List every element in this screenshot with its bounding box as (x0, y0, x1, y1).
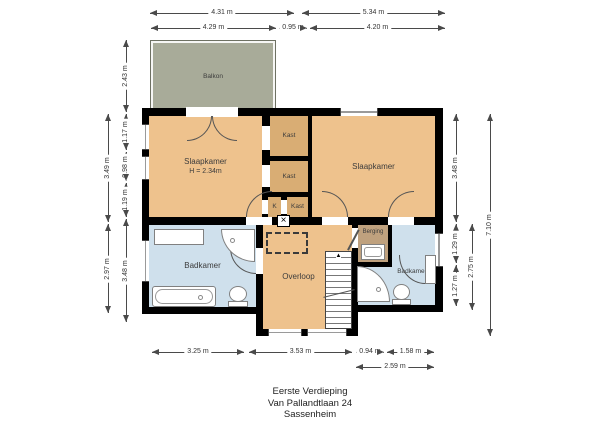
dim-bottom-325: 3.25 m (152, 352, 244, 353)
dim-bottom-259: 2.59 m (356, 367, 434, 368)
dim-left-349: 3.49 m (108, 114, 109, 222)
room-label-overloop: Overloop (282, 272, 314, 282)
window-bedroom-left-lower (142, 156, 149, 180)
dim-right-710: 7.10 m (490, 114, 491, 336)
plan-title-address: Van Pallandtlaan 24 (20, 398, 600, 410)
shower-drain (230, 238, 235, 243)
dim-top-420: 4.20 m (310, 28, 445, 29)
window-overloop-bottom-right (307, 329, 347, 336)
bathtub-drain (198, 295, 203, 300)
dim-bottom-158: 1.58 m (387, 352, 434, 353)
dim-top-429: 4.29 m (151, 28, 276, 29)
dim-label: 3.48 m (452, 154, 460, 181)
dim-right-129: 1.29 m (456, 224, 457, 263)
window-badkamer-left (142, 240, 149, 282)
dim-right-275: 2.75 m (472, 224, 473, 310)
room-kast-mid: Kast (270, 161, 308, 192)
room-label-balkon: Balkon (203, 73, 223, 81)
room-note-ceiling-height: H = 2.34m (189, 167, 222, 176)
dim-label: 3.25 m (184, 348, 211, 356)
plan-title-floor: Eerste Verdieping (20, 386, 600, 398)
doorway-slaapkamer-right-b (388, 217, 414, 225)
window-overloop-bottom-left (268, 329, 302, 336)
dim-right-348: 3.48 m (456, 114, 457, 222)
dim-label: 4.20 m (364, 24, 391, 32)
dim-label: 2.75 m (468, 253, 476, 280)
dim-bottom-094: 0.94 m (356, 352, 384, 353)
dim-label: 4.29 m (200, 24, 227, 32)
sink-counter (154, 229, 204, 245)
window-bedroom-left-upper (142, 124, 149, 150)
bathtub (152, 286, 216, 307)
room-label-slaapkamer-left: Slaapkamer (184, 157, 227, 167)
room-kast-bottom: Kast (287, 197, 308, 217)
doorway-slaapkamer-right-a (322, 217, 348, 225)
dim-top-534: 5.34 m (302, 13, 445, 14)
dim-label: 5.34 m (360, 9, 387, 17)
doorway-kast-mid (262, 165, 270, 187)
dim-label: 0.94 m (356, 348, 383, 356)
dim-label: 3.49 m (104, 154, 112, 181)
dim-label: 0.98 m (122, 153, 130, 180)
doorway-badkamer-left (256, 248, 263, 274)
dim-top-431: 4.31 m (150, 13, 294, 14)
berging-washbasin (361, 244, 385, 260)
dim-label: 2.97 m (104, 255, 112, 282)
plan-title-city: Sassenheim (20, 409, 600, 421)
dim-left-098: 0.98 m (126, 152, 127, 181)
room-label-badkamer-left: Badkamer (184, 261, 220, 271)
shaft-x-icon: × (281, 216, 287, 226)
dim-label: 2.43 m (122, 62, 130, 89)
dim-left-297: 2.97 m (108, 224, 109, 313)
dim-label: 0.95 m (279, 24, 306, 32)
dim-label: 2.59 m (381, 363, 408, 371)
shower-right-drain (376, 287, 381, 292)
room-label-berging: Berging (363, 228, 384, 236)
dim-label: 1.19 m (122, 186, 130, 213)
dim-left-348: 3.48 m (126, 219, 127, 322)
dim-bottom-353: 3.53 m (249, 352, 352, 353)
toilet-right-tank (392, 299, 411, 305)
dim-right-127: 1.27 m (456, 265, 457, 306)
dim-label: 4.31 m (208, 9, 235, 17)
room-label-k: K (272, 203, 276, 211)
room-label-kast-top: Kast (282, 132, 295, 140)
room-balkon: Balkon (150, 40, 276, 114)
dashed-opening (266, 232, 308, 254)
window-badkamer-right (435, 233, 443, 267)
room-label-kast-mid: Kast (282, 173, 295, 181)
dim-label: 1.17 m (122, 118, 130, 145)
floor-plan: Balkon Slaapkamer H = 2.34m Kast Kast K … (0, 0, 600, 424)
room-label-slaapkamer-right: Slaapkamer (352, 162, 395, 172)
toilet-right-bowl (393, 284, 410, 300)
shaft-box: × (277, 215, 290, 227)
berging-washbasin-inner (364, 247, 382, 257)
dim-label: 3.53 m (287, 348, 314, 356)
toilet-left-bowl (229, 286, 247, 302)
doorway-kast-bottom (281, 200, 287, 214)
doorway-k (262, 200, 268, 214)
stair-up-arrow-icon: ▲ (336, 253, 342, 260)
doorway-kast-top (262, 126, 270, 150)
room-kast-top: Kast (270, 116, 308, 156)
dim-label: 1.58 m (397, 348, 424, 356)
toilet-left-tank (228, 301, 248, 307)
dim-label: 1.29 m (452, 230, 460, 257)
dim-left-243: 2.43 m (126, 40, 127, 112)
dim-label: 7.10 m (486, 211, 494, 238)
dim-top-095: 0.95 m (279, 28, 307, 29)
plan-title-block: Eerste Verdieping Van Pallandtlaan 24 Sa… (20, 386, 600, 421)
dim-left-117: 1.17 m (126, 114, 127, 150)
dim-label: 1.27 m (452, 272, 460, 299)
dim-label: 3.48 m (122, 257, 130, 284)
bathtub-inner (155, 289, 213, 304)
room-label-kast-bottom: Kast (291, 203, 304, 211)
window-bedroom-right-top (340, 108, 378, 116)
dim-left-119: 1.19 m (126, 183, 127, 217)
doorway-slaapkamer-left (246, 217, 272, 225)
door-leaf-badkamer-right (425, 255, 436, 284)
